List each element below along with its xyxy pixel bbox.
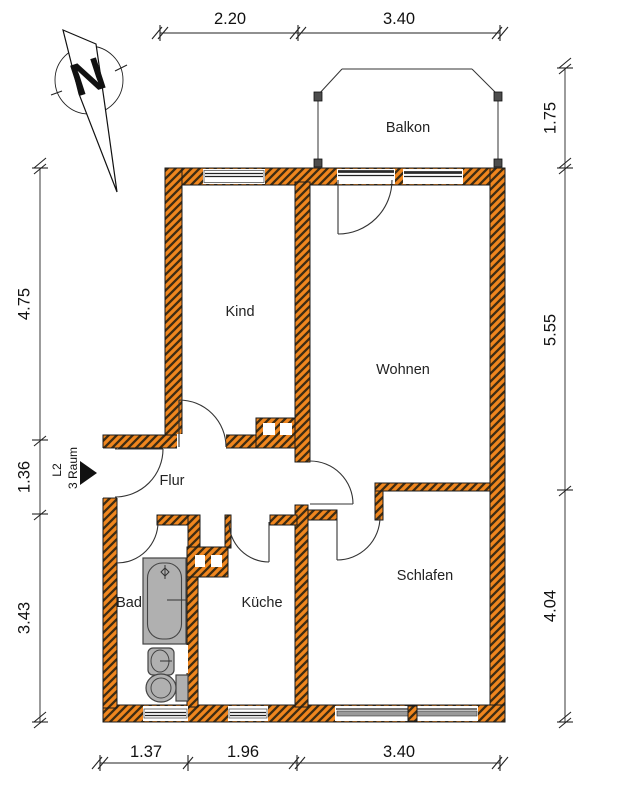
door-schlafen [337,517,380,560]
shaft-duct [211,555,222,567]
door-wohnen [310,461,353,504]
dim-bottom-1: 1.37 [130,743,162,761]
dim-left-3: 3.43 [15,602,33,634]
shaft-duct [280,423,292,435]
wall-exterior-right [490,168,505,722]
dim-bottom-3: 3.40 [383,743,415,761]
balcony-post [494,92,502,101]
window-bad [143,706,188,721]
balcony-structure [314,69,502,167]
room-label-kueche: Küche [241,595,282,611]
compass-tick-east [115,65,127,71]
window-mullion [408,706,417,721]
window-kueche [228,706,268,721]
door-entrance [115,449,163,497]
bathroom-fixtures [143,558,188,702]
wall-schlafen-top-high [375,483,490,491]
toilet [146,674,188,702]
entrance-opening [103,448,118,498]
unit-label-line2: 3 Raum [66,447,80,489]
dim-left-1: 4.75 [15,288,33,320]
sink [148,648,174,675]
shaft-duct [263,423,275,435]
room-label-kind: Kind [225,304,254,320]
entrance-arrow-icon [80,461,97,485]
balcony-post [494,159,502,167]
dim-right-3: 4.04 [541,590,559,622]
dim-right-2: 5.55 [541,314,559,346]
dim-top-2: 3.40 [383,10,415,28]
dim-left-2: 1.36 [15,461,33,493]
room-label-balkon: Balkon [386,120,430,136]
compass-tick-west [51,91,62,95]
dim-top-1: 2.20 [214,10,246,28]
wall-exterior-left-lower [103,498,117,708]
wall-bad-kueche [187,577,198,707]
wall-kind-wohnen [295,182,310,462]
wall-kueche-top [270,515,297,525]
wall-kueche-schlafen [295,505,308,707]
door-opening-kind [177,434,226,449]
dim-bottom-2: 1.96 [227,743,259,761]
room-label-wohnen: Wohnen [376,362,430,378]
unit-label-line1: L2 [50,463,64,477]
bathtub [143,558,186,644]
shaft-duct [195,555,205,567]
door-bad [117,522,158,563]
doors [115,180,392,563]
room-label-bad: Bad [116,595,142,611]
unit-label: L2 3 Raum [50,447,97,489]
room-label-schlafen: Schlafen [397,568,453,584]
wall-schlafen-top-low [308,510,337,520]
floorplan-page: N [0,0,623,800]
dim-right-1: 1.75 [541,102,559,134]
balcony-post [314,159,322,167]
north-compass: N [51,30,127,192]
compass-north-letter: N [64,46,112,106]
door-balcony [338,180,392,234]
wall-shaft-link-left [188,515,200,548]
wall-schlafen-step [375,487,383,520]
wall-niche [174,645,188,673]
balcony-post [314,92,322,101]
window-sill [337,711,477,716]
door-kueche [229,522,269,562]
room-label-flur: Flur [160,473,185,489]
floorplan-drawing: N [0,0,623,800]
